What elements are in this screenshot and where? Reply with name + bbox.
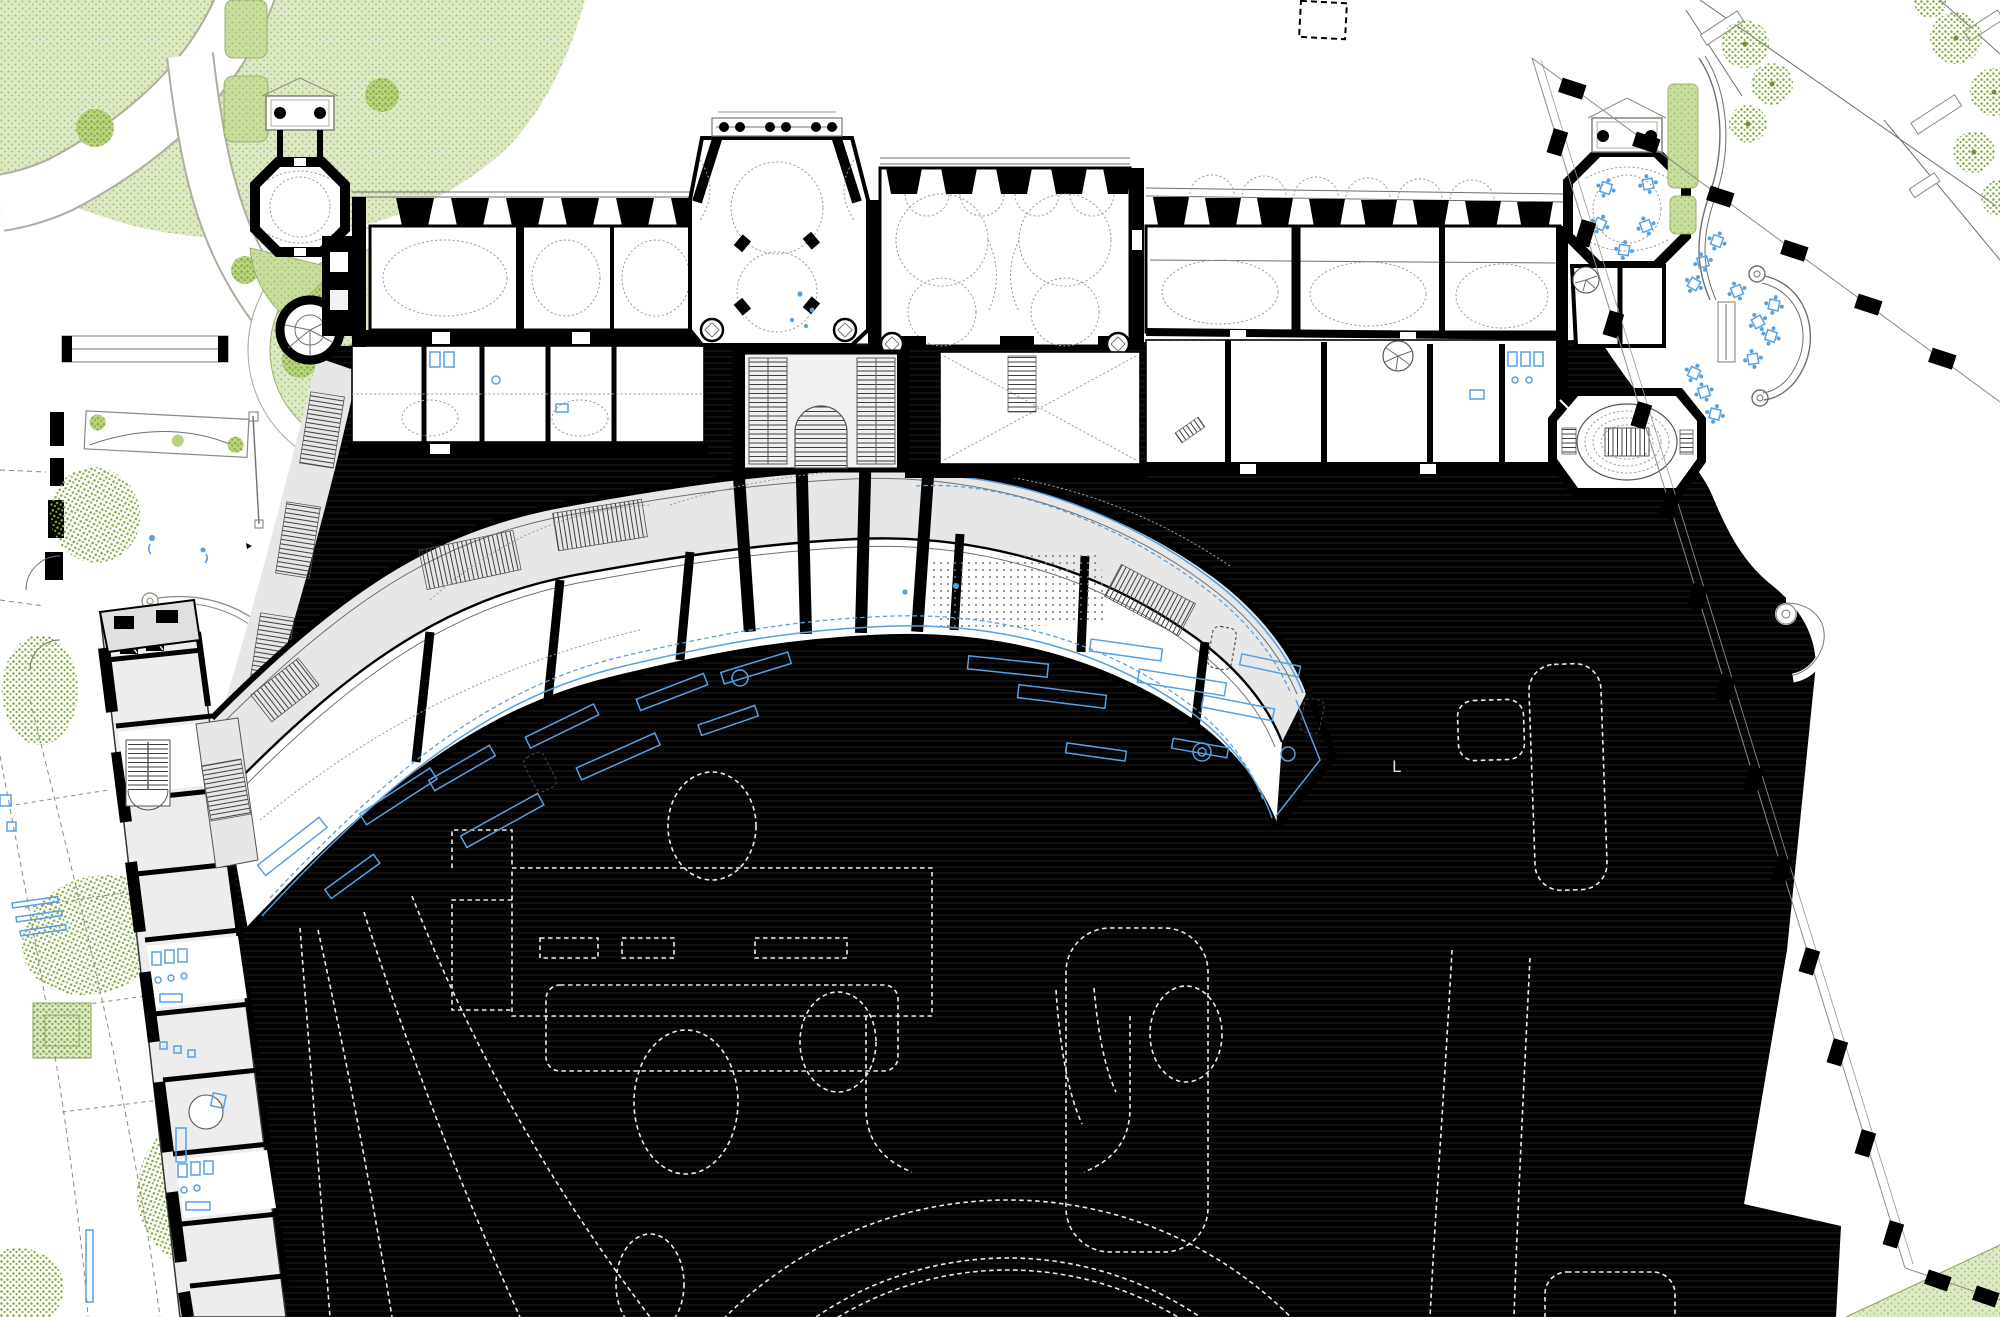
arched-stair [795, 406, 847, 468]
garden-wall-west [62, 336, 228, 362]
south-rooms-center [905, 352, 1146, 478]
corner-mark-label: L [1392, 757, 1401, 776]
central-bay [690, 112, 868, 345]
palace-west-wing [348, 192, 708, 456]
floor-grid-patch [930, 552, 1106, 632]
great-hall [868, 158, 1144, 355]
tower-link-wall [322, 236, 356, 336]
bastion-auditorium [1548, 388, 1706, 496]
auditorium-stage [1605, 428, 1649, 456]
ne-hedge [1668, 84, 1698, 234]
site-plan-page: L [0, 0, 2000, 1317]
site-plan-canvas: L [0, 0, 2000, 1317]
round-room [189, 1095, 223, 1129]
escalator-bay [735, 352, 907, 470]
west-wing-stair [126, 740, 170, 810]
planter-wall [84, 411, 249, 457]
